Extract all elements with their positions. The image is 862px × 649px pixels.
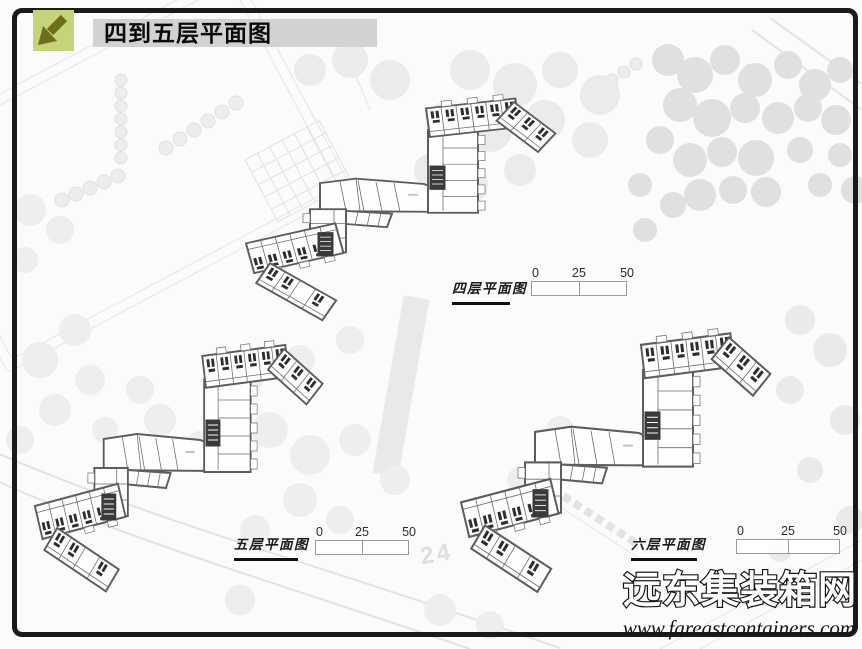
- floor-5-underline: [234, 558, 298, 561]
- floor-4-label: 四层平面图: [452, 277, 527, 297]
- title-bar: 四到五层平面图: [93, 19, 377, 47]
- floor-4-caption: 四层平面图: [452, 277, 527, 305]
- site-plan-background: 24: [0, 0, 862, 649]
- tree-cluster-dark: [628, 44, 862, 242]
- floor-6-scalebar: 0 25 50: [736, 524, 840, 554]
- watermark: 远东集装箱网 www.fareastcontainers.com: [609, 565, 859, 641]
- scalebar-ticks: 0 25 50: [315, 525, 409, 540]
- watermark-url: www.fareastcontainers.com: [609, 616, 859, 641]
- site-plan-canvas: 24: [0, 0, 862, 649]
- floor-5-scalebar: 0 25 50: [315, 525, 409, 555]
- scalebar-bar: [315, 540, 409, 555]
- watermark-site-name: 远东集装箱网: [623, 570, 857, 612]
- floor-5-label: 五层平面图: [234, 533, 309, 553]
- floor-6-label: 六层平面图: [631, 533, 706, 553]
- floor-plan-6-drawing: [461, 327, 770, 592]
- floor-6-underline: [631, 558, 697, 561]
- arrow-down-left-icon: [33, 10, 74, 51]
- floor-5-caption: 五层平面图: [234, 533, 309, 561]
- scalebar-ticks: 0 25 50: [531, 266, 627, 281]
- scalebar-bar: [736, 539, 840, 554]
- floor-4-underline: [452, 302, 510, 305]
- page-title: 四到五层平面图: [93, 19, 272, 47]
- presentation-slide: 24 四到五层平面图 四层平面图 0 25 50 五层平面图 0: [0, 0, 862, 649]
- scalebar-ticks: 0 25 50: [736, 524, 840, 539]
- floor-4-scalebar: 0 25 50: [531, 266, 627, 296]
- watermark-logo: 远东集装箱网: [609, 565, 859, 615]
- floor-6-caption: 六层平面图: [631, 533, 706, 561]
- scalebar-bar: [531, 281, 627, 296]
- header-bullet-icon: [33, 10, 74, 51]
- site-plot-number: 24: [418, 538, 455, 570]
